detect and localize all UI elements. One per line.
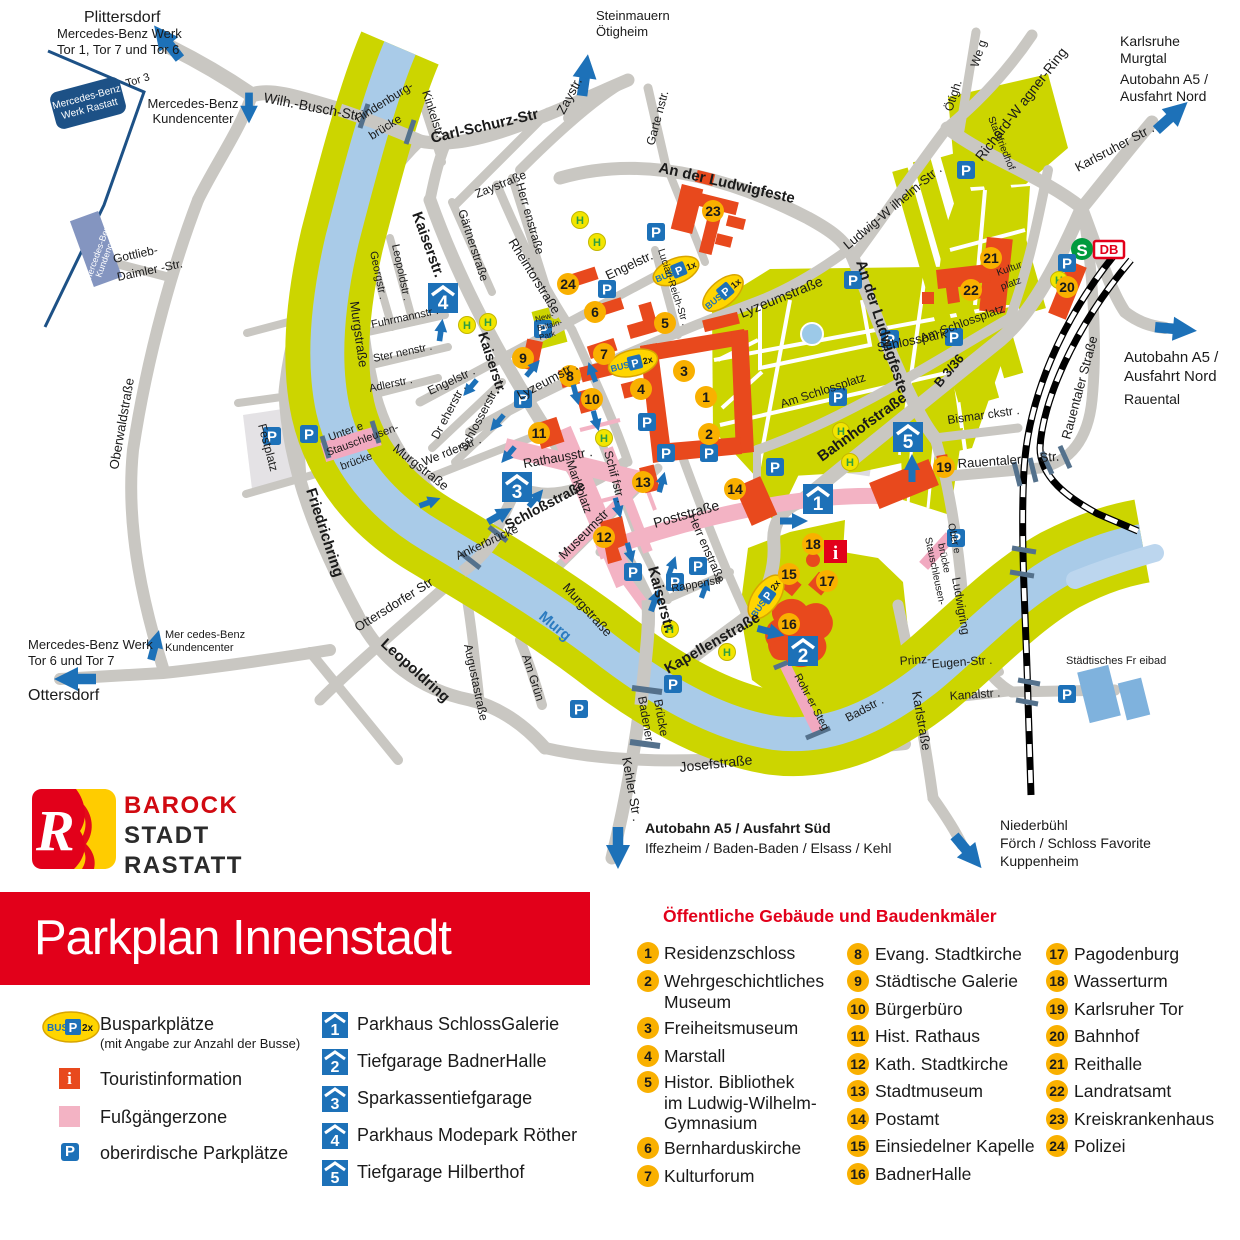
svg-text:Rauental: Rauental xyxy=(1124,391,1180,407)
svg-text:3: 3 xyxy=(680,363,688,379)
svg-text:Mer cedes-Benz: Mer cedes-Benz xyxy=(165,629,245,641)
svg-text:19: 19 xyxy=(936,459,952,475)
svg-text:Kundencenter: Kundencenter xyxy=(165,642,234,654)
svg-text:i: i xyxy=(833,543,838,564)
svg-text:15: 15 xyxy=(781,566,797,582)
svg-text:Iffezheim / Baden-Baden / Elsa: Iffezheim / Baden-Baden / Elsass / Kehl xyxy=(645,840,891,856)
svg-text:DB: DB xyxy=(1100,242,1119,257)
svg-text:4: 4 xyxy=(637,381,645,397)
svg-text:1: 1 xyxy=(813,494,824,515)
svg-text:Niederbühl: Niederbühl xyxy=(1000,817,1068,833)
svg-text:Ausfahrt Nord: Ausfahrt Nord xyxy=(1124,368,1217,385)
svg-text:Autobahn A5 / Ausfahrt Süd: Autobahn A5 / Ausfahrt Süd xyxy=(645,820,831,836)
svg-text:Mercedes-Benz: Mercedes-Benz xyxy=(147,96,238,111)
svg-text:2: 2 xyxy=(331,1059,340,1075)
svg-text:14: 14 xyxy=(727,481,743,497)
svg-text:Städtisches Fr eibad: Städtisches Fr eibad xyxy=(1066,655,1166,667)
svg-text:Förch / Schloss Favorite: Förch / Schloss Favorite xyxy=(1000,835,1151,851)
svg-text:18: 18 xyxy=(805,536,821,552)
svg-text:Murgtal: Murgtal xyxy=(1120,50,1167,66)
svg-text:Mercedes-Benz Werk: Mercedes-Benz Werk xyxy=(28,637,153,652)
svg-text:Karlsruhe: Karlsruhe xyxy=(1120,33,1180,49)
svg-text:4: 4 xyxy=(438,293,449,314)
svg-text:Tor 6 und Tor 7: Tor 6 und Tor 7 xyxy=(28,653,114,668)
svg-text:4: 4 xyxy=(331,1133,340,1149)
svg-text:R: R xyxy=(35,798,75,863)
svg-text:23: 23 xyxy=(705,203,721,219)
svg-text:13: 13 xyxy=(635,474,651,490)
svg-text:P: P xyxy=(69,1020,78,1035)
svg-text:Autobahn A5 /: Autobahn A5 / xyxy=(1120,71,1208,87)
svg-text:S: S xyxy=(1076,241,1087,260)
svg-text:Steinmauern: Steinmauern xyxy=(596,8,670,23)
svg-text:2x: 2x xyxy=(82,1023,94,1034)
svg-text:1: 1 xyxy=(331,1022,340,1038)
svg-text:7: 7 xyxy=(600,346,608,362)
svg-text:16: 16 xyxy=(781,616,797,632)
svg-text:10: 10 xyxy=(584,391,600,407)
svg-text:Mercedes-Benz Werk: Mercedes-Benz Werk xyxy=(57,26,182,41)
svg-text:6: 6 xyxy=(591,304,599,320)
svg-text:20: 20 xyxy=(1059,279,1075,295)
svg-text:9: 9 xyxy=(519,350,527,366)
svg-text:Str.: Str. xyxy=(1039,449,1060,465)
svg-text:Kuppenheim: Kuppenheim xyxy=(1000,853,1079,869)
svg-text:17: 17 xyxy=(819,573,835,589)
svg-text:11: 11 xyxy=(532,425,547,441)
svg-text:Plittersdorf: Plittersdorf xyxy=(84,9,161,26)
svg-text:2: 2 xyxy=(798,646,809,667)
svg-text:21: 21 xyxy=(983,250,999,266)
svg-text:5: 5 xyxy=(903,432,914,453)
svg-text:1: 1 xyxy=(702,389,710,405)
svg-text:5: 5 xyxy=(331,1170,340,1186)
svg-text:Ötigheim: Ötigheim xyxy=(596,24,648,39)
svg-text:Autobahn A5 /: Autobahn A5 / xyxy=(1124,349,1219,366)
svg-text:12: 12 xyxy=(596,529,612,545)
svg-text:3: 3 xyxy=(512,482,523,503)
svg-text:Tor 1, Tor 7 und Tor 6: Tor 1, Tor 7 und Tor 6 xyxy=(57,42,179,57)
svg-text:Ausfahrt Nord: Ausfahrt Nord xyxy=(1120,88,1206,104)
svg-text:2: 2 xyxy=(705,426,713,442)
svg-text:Kundencenter: Kundencenter xyxy=(153,111,235,126)
svg-text:5: 5 xyxy=(661,315,669,331)
svg-text:22: 22 xyxy=(963,282,979,298)
svg-text:24: 24 xyxy=(560,276,576,292)
svg-text:3: 3 xyxy=(331,1096,340,1112)
svg-text:Ottersdorf: Ottersdorf xyxy=(28,687,100,704)
svg-text:Prinz-: Prinz- xyxy=(899,652,931,668)
